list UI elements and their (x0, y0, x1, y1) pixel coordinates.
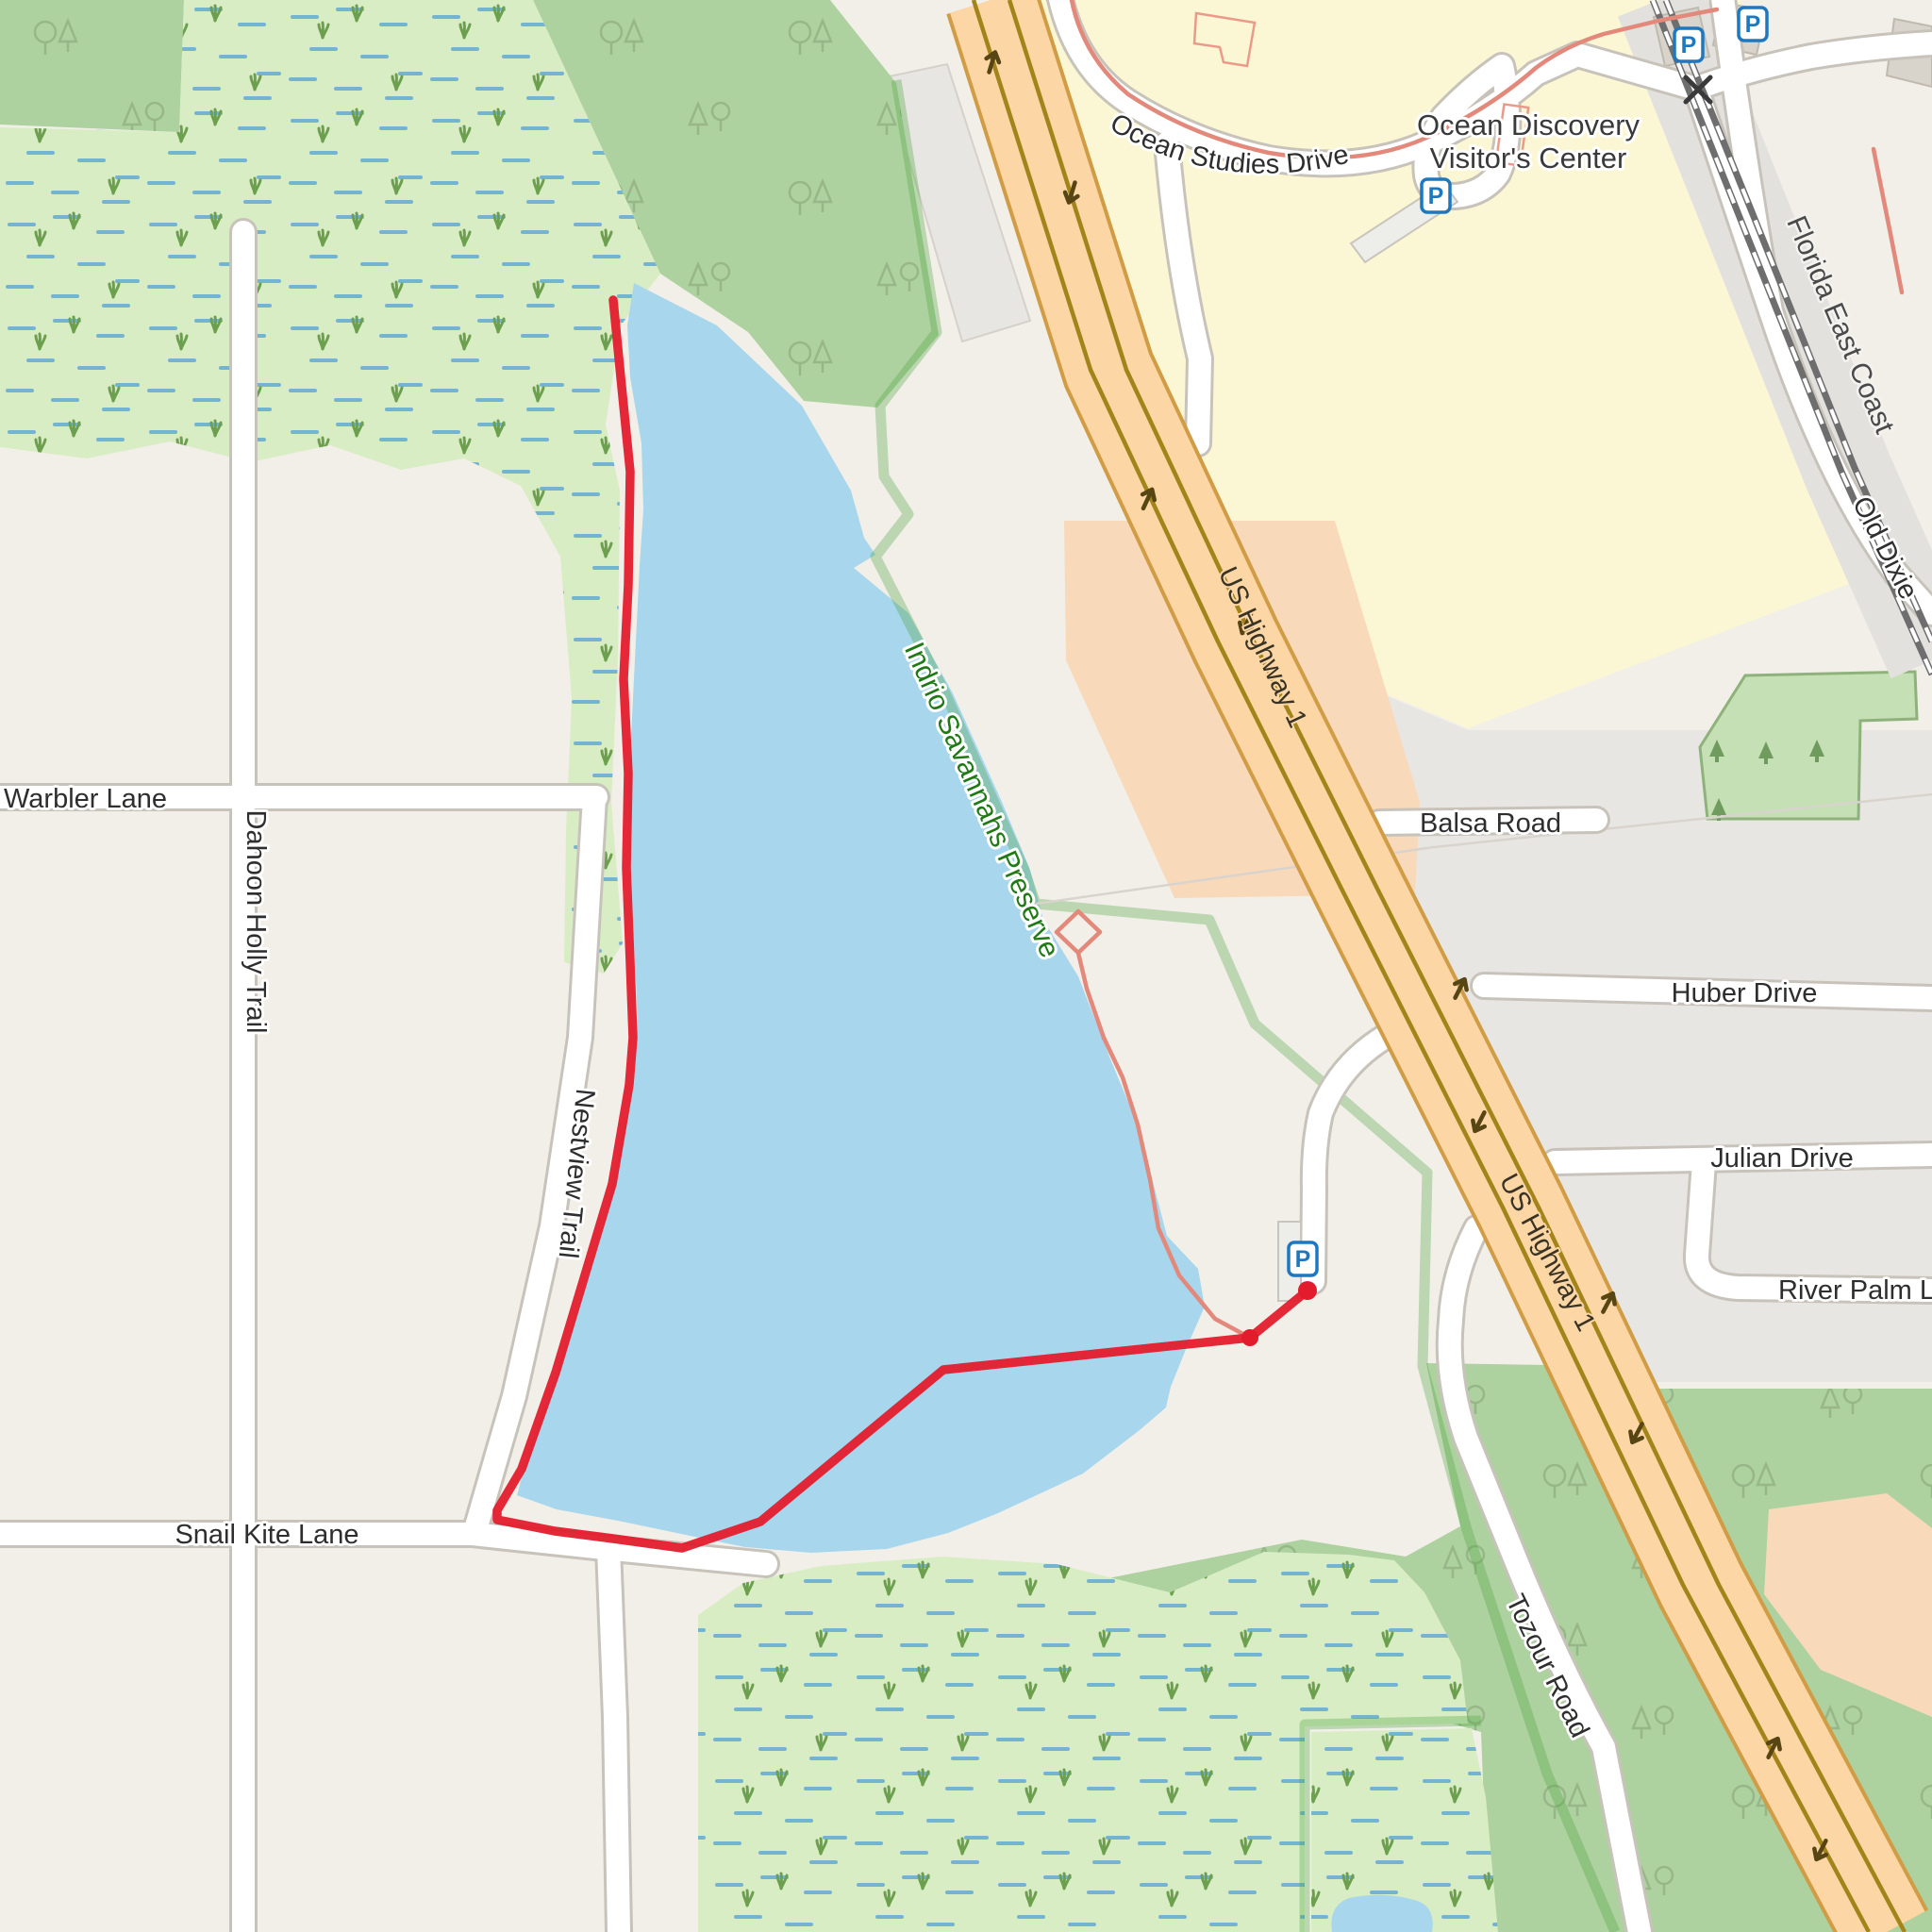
street-label-snail-kite: Snail Kite Lane (175, 1520, 358, 1550)
street-label-river-palm: River Palm L (1778, 1275, 1932, 1306)
svg-text:P: P (1295, 1246, 1311, 1273)
svg-text:P: P (1681, 32, 1697, 58)
map[interactable]: P P P P Warbler Lane Dahoon Holly Trail … (0, 0, 1932, 1932)
parking-icon: P (1422, 179, 1450, 212)
route-waypoint-marker (1241, 1329, 1258, 1346)
route-end-marker (1298, 1281, 1317, 1300)
parking-icon: P (1674, 28, 1703, 61)
place-label-ocean-discovery-2: Visitor's Center (1430, 142, 1627, 175)
parking-icon: P (1289, 1242, 1317, 1275)
street-label-dahoon: Dahoon Holly Trail (241, 810, 271, 1034)
street-label-balsa: Balsa Road (1420, 808, 1561, 839)
map-canvas[interactable]: P P P P Warbler Lane Dahoon Holly Trail … (0, 0, 1932, 1932)
svg-text:P: P (1745, 11, 1761, 38)
street-label-julian: Julian Drive (1710, 1143, 1854, 1174)
parking-icon: P (1739, 8, 1767, 41)
street-label-huber: Huber Drive (1672, 978, 1818, 1008)
place-label-ocean-discovery-1: Ocean Discovery (1417, 108, 1641, 142)
svg-text:P: P (1428, 183, 1444, 209)
street-label-warbler: Warbler Lane (4, 784, 167, 814)
